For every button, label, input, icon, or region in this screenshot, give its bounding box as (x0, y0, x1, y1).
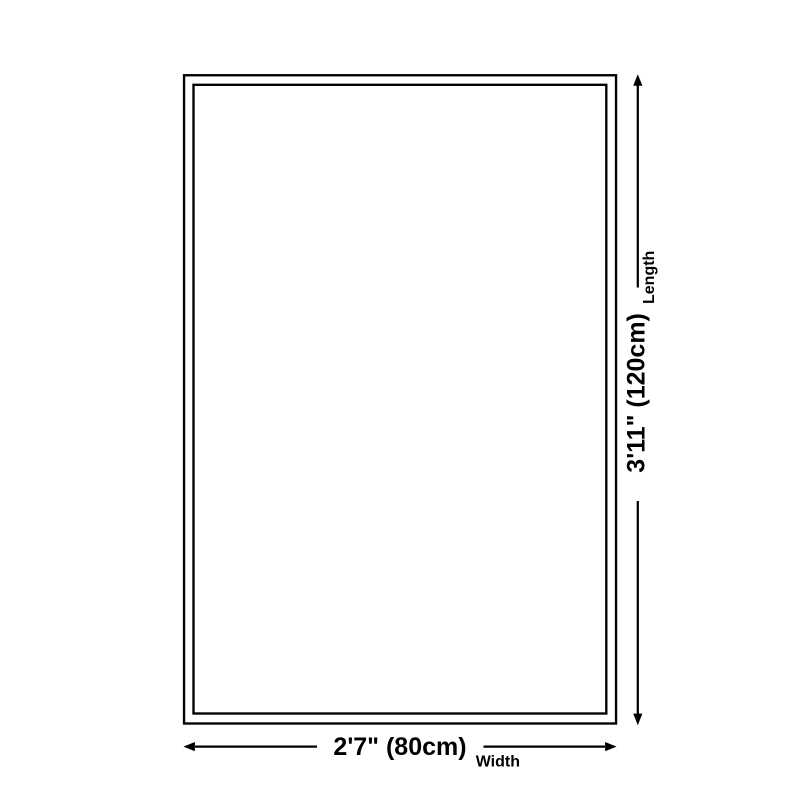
svg-text:Width: Width (476, 753, 520, 770)
svg-text:3'11" (120cm): 3'11" (120cm) (623, 313, 651, 473)
svg-text:2'7" (80cm): 2'7" (80cm) (333, 733, 466, 761)
svg-text:Length: Length (641, 251, 658, 304)
